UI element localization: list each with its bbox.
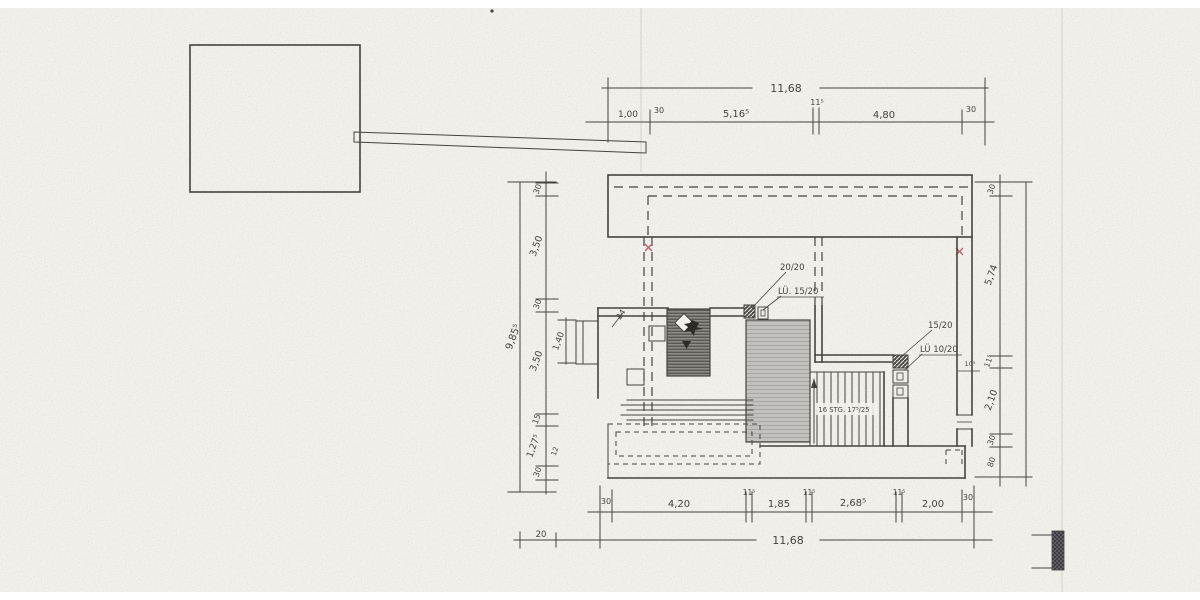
- dim-top-480: 4,80: [873, 110, 895, 121]
- dim-top-overall: 11,68: [770, 82, 802, 95]
- paper-speck: [490, 9, 493, 12]
- dim-top-115: 11⁵: [810, 98, 823, 107]
- dim-top-30a: 30: [654, 106, 664, 115]
- label-10: 10⁵: [965, 360, 976, 368]
- dim-bottom-overall: 11,68: [772, 534, 804, 547]
- page-edge-top: [0, 0, 1200, 8]
- floor-plan-drawing: 11,68 1,00 30 5,16⁵ 11⁵ 4,80 30: [0, 0, 1200, 600]
- dim-bottom-2685: 2,68⁵: [840, 498, 866, 509]
- binding-hatch-mark: [1052, 531, 1064, 570]
- dim-bottom-115m: 11⁵: [803, 488, 816, 497]
- dim-bottom-115a: 11⁵: [743, 488, 756, 497]
- label-lu-10-20: LÜ 10/20: [920, 344, 958, 355]
- label-20-20: 20/20: [780, 263, 805, 273]
- label-15-20: 15/20: [928, 321, 953, 331]
- scanned-floor-plan-sheet: 11,68 1,00 30 5,16⁵ 11⁵ 4,80 30: [0, 0, 1200, 600]
- dim-bottom-185: 1,85: [768, 499, 790, 510]
- page-edge-bottom: [0, 592, 1200, 600]
- dim-top-100: 1,00: [618, 110, 638, 120]
- dim-bottom-lead20: 20: [536, 530, 547, 540]
- column-15x20: [893, 355, 908, 368]
- dim-bottom-30b: 30: [963, 493, 973, 502]
- dim-top-516: 5,16⁵: [723, 109, 749, 120]
- dim-bottom-30a: 30: [601, 497, 611, 506]
- dim-bottom-420: 4,20: [668, 499, 690, 510]
- chimney-block: [667, 309, 710, 376]
- label-lu-15-20: LÜ. 15/20: [778, 286, 818, 297]
- stair-note-label: 16 STG. 17⁵/25: [818, 406, 869, 414]
- dim-bottom-115b: 11⁵: [893, 488, 906, 497]
- dim-bottom-200: 2,00: [922, 499, 944, 510]
- dim-top-30b: 30: [966, 105, 976, 114]
